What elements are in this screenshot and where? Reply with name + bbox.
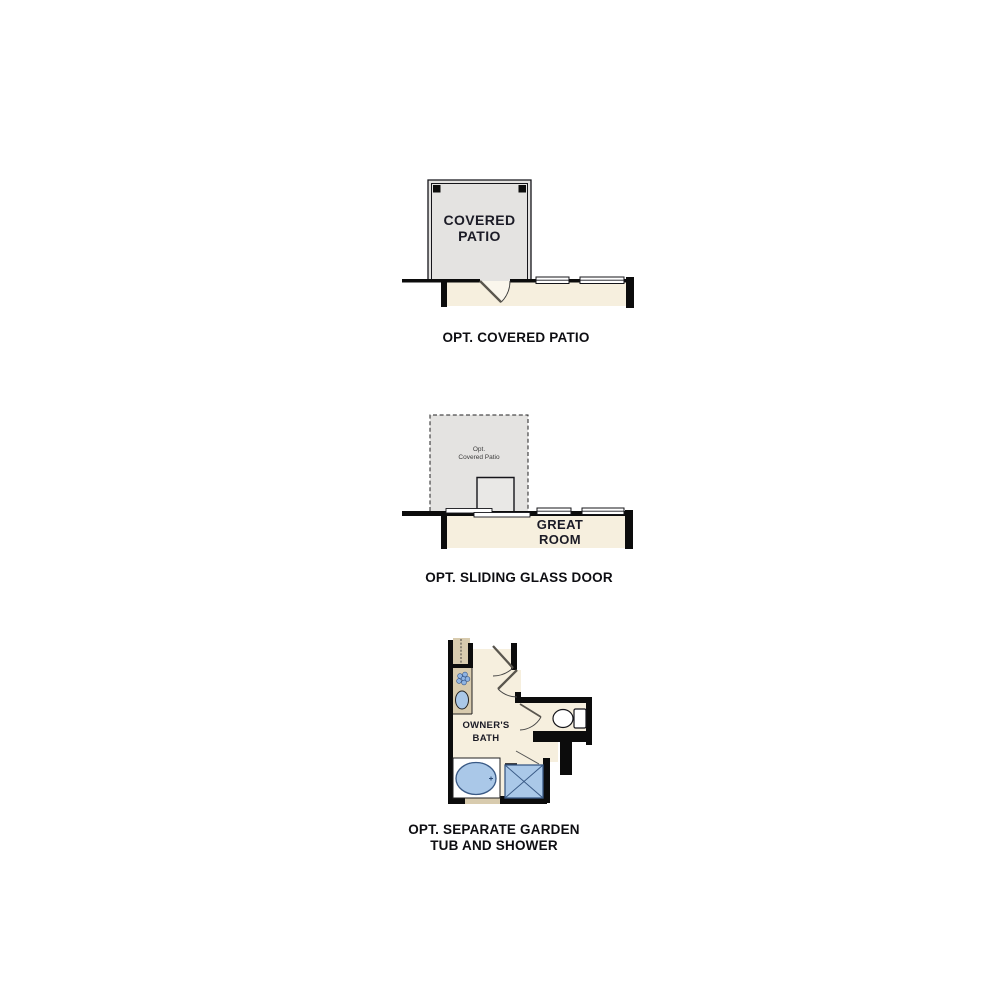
optional-patio-label: Opt. Covered Patio [430, 446, 528, 461]
floor-plan-options-sheet: COVERED PATIO OPT. COVERED PATIO [0, 0, 1000, 1000]
window-icon [582, 508, 624, 515]
window-icon [537, 508, 571, 515]
room-label-covered-patio: COVERED PATIO [428, 213, 531, 244]
interior-floor [447, 282, 626, 306]
toilet-icon [553, 709, 586, 728]
figure-caption: OPT. SEPARATE GARDEN TUB AND SHOWER [388, 822, 600, 853]
figure-caption: OPT. SLIDING GLASS DOOR [399, 570, 639, 586]
window-icon [536, 277, 569, 284]
linen-closet [453, 638, 473, 668]
garden-tub-icon [453, 758, 500, 798]
patio-post [519, 185, 527, 193]
figure-caption: OPT. COVERED PATIO [396, 330, 636, 346]
patio-post [433, 185, 441, 193]
sink-icon [456, 691, 469, 709]
room-label-great-room: GREAT ROOM [510, 517, 610, 547]
room-label-owners-bath: OWNER'S BATH [450, 719, 522, 745]
window-icon [580, 277, 624, 284]
sliding-door-vestibule [477, 478, 514, 512]
